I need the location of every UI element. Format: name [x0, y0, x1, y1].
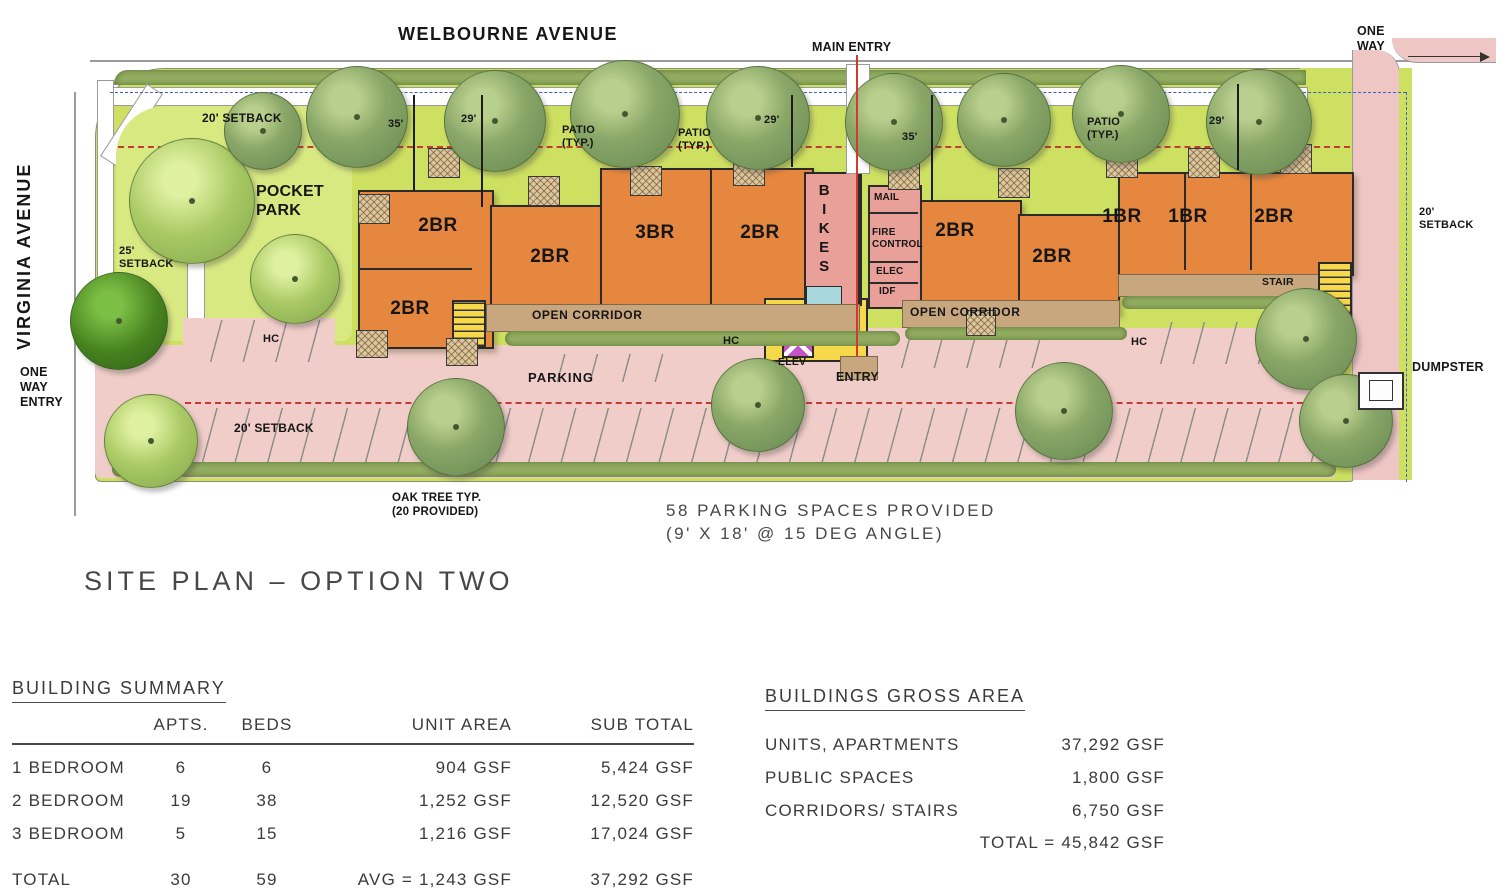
dimension-line [481, 95, 483, 207]
table-row: PUBLIC SPACES 1,800 GSF [765, 768, 1165, 788]
apts-value: 5 [150, 824, 212, 844]
col-header-unit-area: UNIT AREA [322, 715, 512, 735]
unit-label-2br: 2BR [1022, 246, 1082, 268]
dumpster [1358, 372, 1404, 410]
hedge-strip [505, 331, 900, 346]
patio [630, 166, 662, 196]
building-summary-table: BUILDING SUMMARY APTS. BEDS UNIT AREA SU… [12, 678, 694, 888]
row-value: 37,292 GSF [1045, 735, 1165, 755]
utility-divider [868, 261, 918, 263]
patio [528, 176, 560, 206]
total-apts: 30 [150, 870, 212, 888]
unit-label-2br: 2BR [925, 220, 985, 242]
unit-label-2br: 2BR [408, 215, 468, 237]
table-row: 3 BEDROOM 5 15 1,216 GSF 17,024 GSF [12, 824, 694, 844]
tree [224, 92, 302, 170]
unit-label-2br: 2BR [730, 222, 790, 244]
hc-label: HC [723, 335, 739, 348]
setback-label-left: 25' SETBACK [119, 245, 174, 271]
setback-label-top: 20' SETBACK [202, 111, 282, 125]
total-beds: 59 [212, 870, 322, 888]
unit-divider [360, 268, 472, 270]
street-label-welbourne: WELBOURNE AVENUE [398, 24, 618, 45]
sub-total-value: 17,024 GSF [512, 824, 694, 844]
mail-room-label: MAIL [874, 192, 899, 204]
one-way-arrowhead-icon [1480, 52, 1490, 62]
table-total-row: TOTAL 30 59 AVG = 1,243 GSF 37,292 GSF [12, 870, 694, 888]
dumpster-label: DUMPSTER [1412, 360, 1484, 375]
open-corridor-label: OPEN CORRIDOR [910, 305, 1020, 319]
sheet-title: SITE PLAN – OPTION TWO [84, 566, 514, 597]
dim-label-29: 29' [764, 114, 779, 127]
tree [306, 66, 408, 168]
tree [845, 73, 943, 171]
row-value: 1,800 GSF [1045, 768, 1165, 788]
site-plan-sheet: WELBOURNE AVENUE MAIN ENTRY ONE WAY VIRG… [0, 0, 1510, 888]
stair-label: STAIR [1262, 276, 1294, 288]
beds-value: 38 [212, 791, 322, 811]
patio-label: PATIO (TYP.) [562, 124, 595, 150]
col-header-beds: BEDS [212, 715, 322, 735]
setback-label-right: 20' SETBACK [1419, 206, 1474, 232]
parking-tree [1015, 362, 1113, 460]
row-label: PUBLIC SPACES [765, 768, 1045, 788]
tree [444, 70, 546, 172]
open-corridor-label: OPEN CORRIDOR [532, 308, 642, 322]
dim-label-35: 35' [902, 131, 917, 144]
dim-label-29: 29' [1209, 115, 1224, 128]
row-label: 3 BEDROOM [12, 824, 150, 844]
property-line-right [1406, 92, 1407, 482]
gross-area-title: BUILDINGS GROSS AREA [765, 686, 1025, 711]
unit-label-1br: 1BR [1158, 206, 1218, 228]
bikes-room-label: BIKES [815, 182, 833, 322]
dimension-line [413, 95, 415, 191]
hedge-strip [905, 327, 1127, 340]
dimension-line [791, 95, 793, 167]
utility-divider [868, 282, 918, 284]
table-row: 1 BEDROOM 6 6 904 GSF 5,424 GSF [12, 758, 694, 778]
patio-label: PATIO (TYP.) [678, 127, 711, 153]
one-way-arrow [1408, 56, 1482, 57]
row-label: 1 BEDROOM [12, 758, 150, 778]
row-label: 2 BEDROOM [12, 791, 150, 811]
col-header-apts: APTS. [150, 715, 212, 735]
table-row: 2 BEDROOM 19 38 1,252 GSF 12,520 GSF [12, 791, 694, 811]
tree [250, 234, 340, 324]
row-label: UNITS, APARTMENTS [765, 735, 1045, 755]
apts-value: 19 [150, 791, 212, 811]
entry-label: ENTRY [836, 370, 879, 385]
apts-value: 6 [150, 758, 212, 778]
parking-label: PARKING [528, 370, 594, 385]
dim-label-29: 29' [461, 113, 476, 126]
dimension-line [1237, 84, 1239, 170]
welbourne-street-edge [90, 60, 1490, 62]
bottom-hedge [112, 462, 1336, 477]
fire-control-room-label: FIRE CONTROL [872, 227, 923, 251]
tree [706, 66, 810, 170]
parking-stripes [190, 320, 332, 362]
patio [998, 168, 1030, 198]
sub-total-value: 5,424 GSF [512, 758, 694, 778]
sub-total-value: 12,520 GSF [512, 791, 694, 811]
utility-divider [868, 212, 918, 214]
row-value: 6,750 GSF [1045, 801, 1165, 821]
beds-value: 15 [212, 824, 322, 844]
unit-area-value: 1,252 GSF [322, 791, 512, 811]
row-label: CORRIDORS/ STAIRS [765, 801, 1045, 821]
patio [358, 194, 390, 224]
main-entry-label: MAIN ENTRY [812, 40, 891, 55]
building-east-block [1118, 172, 1354, 276]
unit-area-value: 1,216 GSF [322, 824, 512, 844]
dimension-line [931, 95, 933, 201]
table-row: CORRIDORS/ STAIRS 6,750 GSF [765, 801, 1165, 821]
pocket-park-label: POCKET PARK [256, 183, 324, 221]
tree [1072, 65, 1170, 163]
beds-value: 6 [212, 758, 322, 778]
setback-label-bottom: 20' SETBACK [234, 421, 314, 435]
hc-label: HC [1131, 336, 1147, 349]
oak-tree-note: OAK TREE TYP. (20 PROVIDED) [392, 492, 481, 519]
col-header-sub-total: SUB TOTAL [512, 715, 694, 735]
one-way-entry-label: ONE WAY ENTRY [20, 365, 63, 409]
unit-label-2br: 2BR [1244, 206, 1304, 228]
hc-label: HC [263, 333, 279, 346]
tree [70, 272, 168, 370]
elec-room-label: ELEC [876, 266, 903, 278]
parking-tree [711, 358, 805, 452]
building-summary-title: BUILDING SUMMARY [12, 678, 226, 703]
total-sub-total: 37,292 GSF [512, 870, 694, 888]
idf-room-label: IDF [879, 286, 896, 298]
building-summary-header: APTS. BEDS UNIT AREA SUB TOTAL [12, 715, 694, 745]
patio [446, 338, 478, 366]
table-row: UNITS, APARTMENTS 37,292 GSF [765, 735, 1165, 755]
gross-area-total: TOTAL = 45,842 GSF [765, 833, 1165, 853]
patio [356, 330, 388, 358]
building-2br-c2a [920, 200, 1022, 308]
gross-area-table: BUILDINGS GROSS AREA UNITS, APARTMENTS 3… [765, 686, 1165, 853]
total-unit-area: AVG = 1,243 GSF [322, 870, 512, 888]
unit-area-value: 904 GSF [322, 758, 512, 778]
total-label: TOTAL [12, 870, 150, 888]
parking-stripes [1140, 322, 1268, 364]
patio-label: PATIO (TYP.) [1087, 116, 1120, 142]
parking-tree [407, 378, 505, 476]
tree [570, 60, 680, 168]
dim-label-35: 35' [388, 118, 403, 131]
parking-spaces-note: 58 PARKING SPACES PROVIDED (9' X 18' @ 1… [666, 500, 996, 546]
unit-label-1br: 1BR [1092, 206, 1152, 228]
tree [957, 73, 1051, 167]
unit-label-2br: 2BR [520, 246, 580, 268]
unit-label-3br: 3BR [625, 222, 685, 244]
street-label-virginia: VIRGINIA AVENUE [14, 110, 35, 350]
elevator-label: ELEV [778, 356, 806, 368]
main-entry-axis [856, 55, 858, 357]
one-way-label-top: ONE WAY [1357, 24, 1385, 54]
tree [104, 394, 198, 488]
unit-label-2br: 2BR [380, 298, 440, 320]
